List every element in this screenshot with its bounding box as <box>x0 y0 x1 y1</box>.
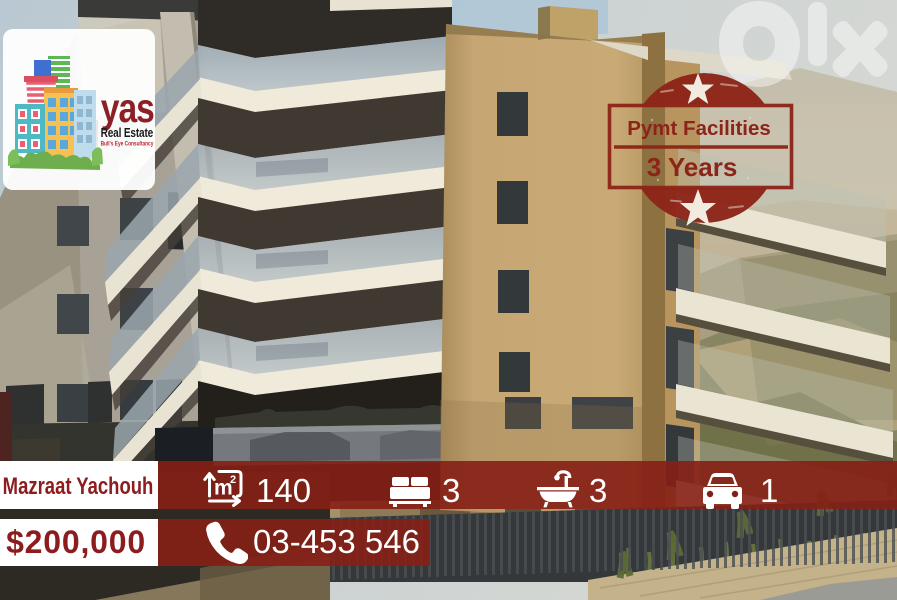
svg-text:Real Estate: Real Estate <box>101 127 153 140</box>
svg-text:2: 2 <box>230 474 236 486</box>
svg-text:yas: yas <box>101 85 154 131</box>
svg-text:Bull's Eye Consultancy: Bull's Eye Consultancy <box>101 141 154 148</box>
svg-text:Pymt Facilities: Pymt Facilities <box>627 117 771 140</box>
svg-text:3 Years: 3 Years <box>647 152 738 182</box>
